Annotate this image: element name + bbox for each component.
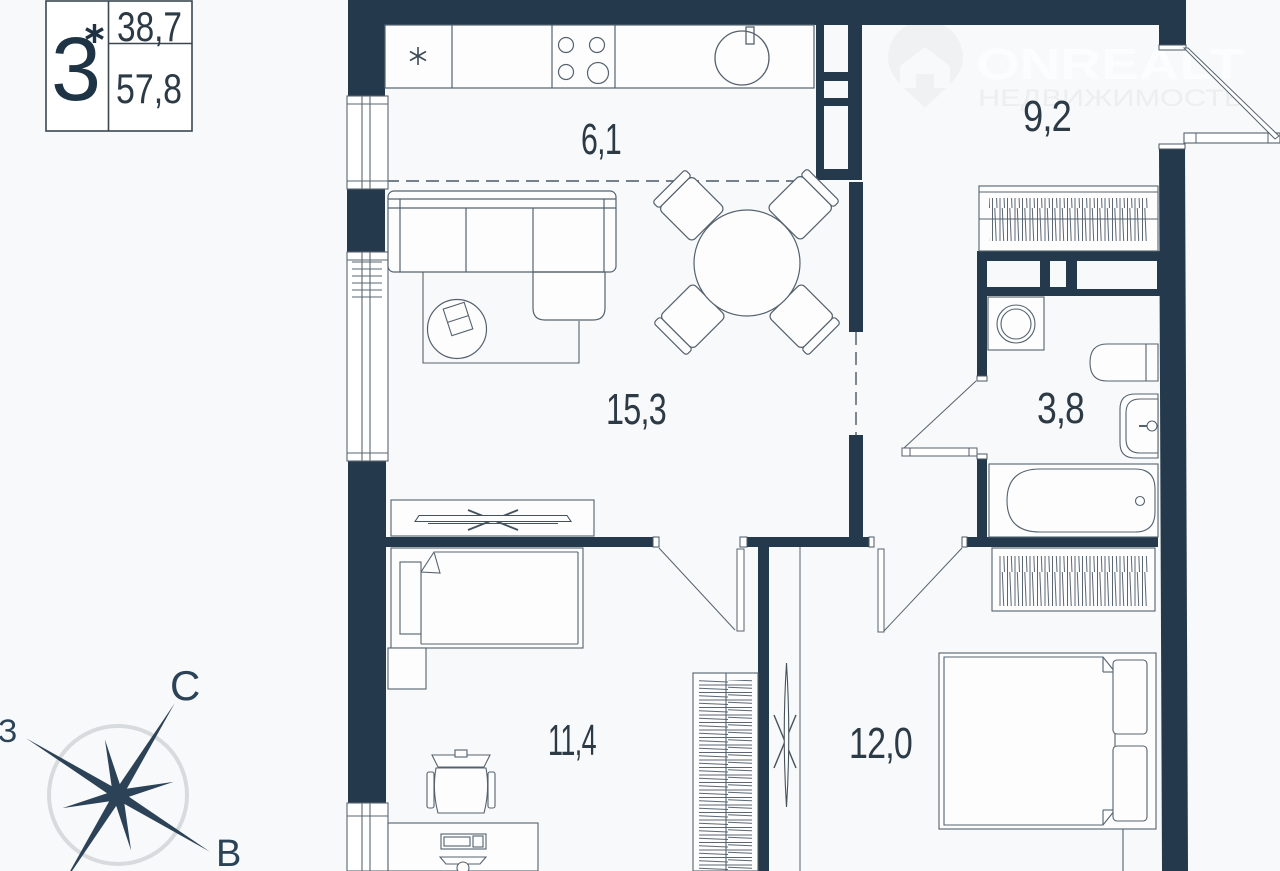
svg-text:11,4: 11,4 bbox=[548, 716, 596, 765]
svg-text:С: С bbox=[170, 662, 200, 709]
svg-text:НЕДВИЖИМОСТЬ: НЕДВИЖИМОСТЬ bbox=[978, 85, 1244, 112]
svg-text:12,0: 12,0 bbox=[849, 719, 912, 768]
svg-text:38,7: 38,7 bbox=[117, 3, 182, 50]
svg-text:3,8: 3,8 bbox=[1037, 384, 1084, 433]
svg-text:57,8: 57,8 bbox=[116, 65, 182, 112]
svg-text:6,1: 6,1 bbox=[581, 115, 621, 164]
svg-text:В: В bbox=[216, 833, 241, 871]
svg-text:З: З bbox=[0, 713, 17, 749]
svg-text:9,2: 9,2 bbox=[1023, 92, 1071, 141]
svg-text:15,3: 15,3 bbox=[606, 385, 666, 434]
